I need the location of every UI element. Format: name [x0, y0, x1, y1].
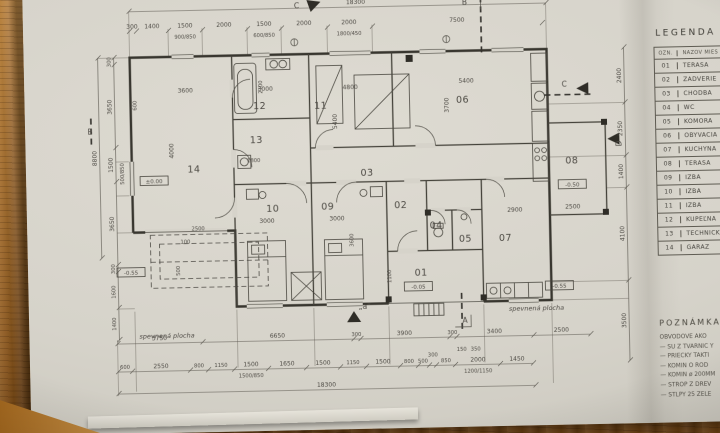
bed-icon: [324, 239, 363, 300]
dim-label: 350: [471, 346, 481, 352]
marker-a-small: „a“: [359, 302, 372, 311]
legend-row: 01TERASA: [655, 56, 720, 72]
dim-label: 1500: [256, 21, 272, 28]
level-label: -0.50: [565, 182, 580, 188]
legend-room-num: 06: [656, 132, 679, 139]
dim-label: 3400: [487, 328, 503, 335]
legend-room-num: 14: [659, 244, 682, 251]
legend-room-name: KUCHYŇA: [680, 145, 717, 153]
section-line-c: [544, 94, 594, 95]
legend-room-name: TERASA: [680, 160, 711, 168]
dim-label: 2350: [617, 121, 624, 137]
notes-title: POZNÁMKA: [659, 316, 720, 328]
legend-room-num: 05: [656, 118, 679, 125]
dim-label: 1150: [346, 360, 359, 366]
level-label: -0.05: [411, 285, 426, 291]
room-label-08: 08: [565, 155, 578, 166]
legend-room-name: KÚPEĽŇA: [681, 216, 716, 224]
dim-label: 1600: [111, 285, 117, 298]
dim-label: 2900: [507, 207, 523, 214]
dim-label: 3000: [259, 218, 275, 225]
dim-label: 300: [126, 24, 138, 31]
dim-label: 7500: [449, 17, 465, 24]
legend-room-name: CHODBA: [678, 90, 712, 98]
column-icon: [481, 294, 487, 300]
dim-label: 100: [180, 240, 190, 246]
legend-col-num: OZN.: [655, 50, 678, 56]
dim-label: 1800: [247, 158, 260, 164]
legend-room-num: 07: [657, 146, 680, 153]
dim-label: 500: [176, 266, 182, 276]
room-label-10: 10: [266, 204, 279, 215]
window-dim-label: 500/850: [120, 163, 126, 185]
legend-row: 02ZÁDVERIE: [655, 70, 720, 86]
dim-label: 1500: [375, 358, 391, 365]
legend-row: 14GARÁŽ: [659, 238, 720, 254]
legend-row: 06OBÝVACIA: [656, 126, 720, 142]
legend-room-num: 11: [658, 202, 681, 209]
chimney-icon: [425, 209, 431, 215]
room-label-06: 06: [456, 95, 469, 106]
room-label-09: 09: [321, 202, 334, 213]
dim-label: 3500: [621, 313, 628, 329]
legend-panel: LEGENDA M OZN. NÁZOV MIES 01TERASA 02ZÁD…: [653, 26, 720, 256]
dim-label: 300: [351, 332, 361, 338]
legend-room-name: IZBA: [680, 188, 701, 195]
room-numbers: 01 02 03 04 05 06 07 08 09 10 11 12 13 1…: [186, 92, 581, 283]
marker-d-right: D: [614, 140, 623, 146]
column-icon: [603, 209, 609, 215]
legend-row: 13TECHNICKÁ: [658, 224, 720, 240]
window-dim-label: 1200/1150: [464, 368, 492, 375]
legend-row: 09IZBA: [657, 168, 720, 184]
dim-label: 850: [441, 358, 451, 364]
dim-label: 3600: [178, 87, 194, 94]
window-dim-label: 600/850: [253, 33, 275, 39]
dim-label: 5400: [332, 114, 339, 130]
dim-overall-bottom: 18300: [317, 382, 336, 389]
marker-b-top: B: [462, 0, 467, 7]
window-dim-label: 1800/450: [337, 31, 362, 38]
dim-label: 2400: [616, 68, 623, 84]
terrace08-walls: [548, 122, 607, 215]
section-arrow-c-top: [306, 0, 320, 12]
dim-label: 3650: [106, 99, 113, 115]
legend-room-num: 08: [657, 160, 680, 167]
dim-label: 1500: [315, 360, 331, 367]
room-label-12: 12: [253, 101, 266, 112]
photo-viewport: ±0.00 -0.05 -0.50 -0.55 -0.55 01 02 03 0…: [0, 0, 720, 433]
chimney-icon: [406, 55, 413, 62]
level-label: ±0.00: [146, 179, 163, 185]
window-dim-label: 1500/850: [239, 373, 264, 380]
legend-room-num: 01: [655, 62, 678, 69]
note-line: — STROP Z DREV: [660, 379, 720, 391]
legend-room-name: GARÁŽ: [682, 244, 710, 252]
dim-label: 2550: [153, 363, 169, 370]
level-label: -0.55: [124, 271, 139, 277]
dim-label: 4800: [343, 84, 359, 91]
dim-label: 1150: [214, 363, 227, 369]
marker-a-bottom: A: [462, 316, 468, 325]
legend-room-num: 13: [658, 230, 681, 237]
legend-row: 05KOMORA: [656, 112, 720, 128]
dim-label: 3900: [397, 330, 413, 337]
kitchen-counter-icon: [531, 53, 548, 81]
paved-area-label-left: spevnená plocha: [139, 331, 194, 340]
dim-label: 2000: [341, 19, 357, 26]
interior-dimensions: 3600 4000 600 3000 2100 1800 4800 5400 5…: [132, 74, 582, 288]
column-icon: [601, 119, 607, 125]
legend-room-num: 03: [655, 90, 678, 97]
legend-title: LEGENDA M: [655, 26, 720, 39]
dim-label: 3000: [329, 215, 345, 222]
dim-label: 1650: [279, 360, 295, 367]
room-label-14: 14: [187, 164, 200, 175]
dim-label: 4100: [619, 226, 626, 242]
notes-panel: POZNÁMKA OBVODOVÉ AKO — SÚ Z TVÁRNIC Y —…: [659, 316, 720, 401]
dim-label: 2000: [216, 22, 232, 29]
dim-label: 1500: [177, 22, 193, 29]
dim-label: 300: [107, 57, 113, 67]
dim-label: 2000: [296, 20, 312, 27]
dim-label: 1400: [144, 23, 160, 30]
legend-room-name: KOMORA: [679, 118, 713, 126]
legend-row: 12KÚPEĽŇA: [658, 210, 720, 226]
dim-label: 600: [132, 101, 138, 111]
section-arrow-a: [347, 311, 361, 322]
sink-icon: [461, 214, 467, 220]
legend-room-name: TERASA: [678, 62, 709, 70]
legend-room-name: IZBA: [680, 174, 701, 181]
legend-room-num: 02: [655, 76, 678, 83]
room-label-11: 11: [314, 101, 327, 112]
legend-room-num: 09: [657, 174, 680, 181]
paved-area-label-right: spevnená plocha: [509, 304, 564, 313]
marker-c-top: C: [294, 1, 299, 10]
room-label-05: 05: [459, 234, 472, 245]
dim-label: 5400: [458, 78, 474, 85]
dim-label: 3600: [349, 233, 355, 246]
dim-overall-left: 8800: [92, 151, 99, 167]
legend-room-name: WC: [679, 104, 695, 111]
dim-label: 800: [194, 363, 204, 369]
dim-label: 4000: [168, 143, 175, 159]
dim-overall-top: 18300: [346, 0, 365, 6]
dim-label: 1400: [112, 317, 118, 330]
dim-label: 1450: [509, 356, 525, 363]
bed-icon: [247, 241, 286, 302]
dim-label: 2500: [554, 327, 570, 334]
legend-table: OZN. NÁZOV MIES 01TERASA 02ZÁDVERIE 03CH…: [653, 44, 720, 255]
legend-room-name: TECHNICKÁ: [681, 229, 720, 237]
legend-room-name: OBÝVACIA: [679, 131, 717, 139]
legend-room-num: 10: [657, 188, 680, 195]
section-arrow-c-right: [576, 82, 588, 94]
floor-plan-drawing: ±0.00 -0.05 -0.50 -0.55 -0.55 01 02 03 0…: [82, 0, 651, 423]
dim-label: 2500: [565, 203, 581, 210]
room-label-07: 07: [499, 233, 512, 244]
dim-label: 150: [457, 347, 467, 353]
blueprint-sheet: ±0.00 -0.05 -0.50 -0.55 -0.55 01 02 03 0…: [22, 0, 720, 433]
dim-label: 300: [111, 264, 117, 274]
legend-row: 11IZBA: [658, 196, 720, 212]
dim-label: 3700: [443, 97, 450, 113]
dim-label: 1500: [243, 361, 259, 368]
dim-label: 1100: [387, 270, 393, 283]
room-label-13: 13: [250, 135, 263, 146]
legend-room-num: 04: [656, 104, 679, 111]
dim-label: 1500: [108, 157, 115, 173]
legend-room-name: IZBA: [681, 202, 702, 209]
legend-col-name: NÁZOV MIES: [678, 49, 719, 56]
dim-label: 800: [404, 359, 414, 365]
dim-label: 300: [428, 352, 438, 358]
column-icon: [386, 296, 392, 302]
level-label: -0.55: [552, 284, 567, 290]
dim-label: 500: [418, 359, 428, 365]
left-dimensions: 8800 300 3650 1500 3650 300 500/850 1600…: [90, 57, 130, 331]
dim-label: 300: [447, 330, 457, 336]
dim-label: 6650: [270, 333, 286, 340]
legend-room-num: 12: [658, 216, 681, 223]
legend-row: 03CHODBA: [655, 84, 720, 100]
dim-label: 1400: [618, 164, 625, 180]
window-dim-label: 900/850: [174, 34, 196, 40]
dim-label: 3650: [109, 216, 116, 232]
dim-label: 2100: [258, 80, 264, 93]
dim-label: 2000: [470, 356, 486, 363]
legend-row: 08TERASA: [657, 154, 720, 170]
legend-row: 04WC: [656, 98, 720, 114]
legend-row: 07KUCHYŇA: [656, 140, 720, 156]
legend-row: 10IZBA: [657, 182, 720, 198]
room-label-01: 01: [414, 268, 427, 279]
section-line-b: [88, 0, 483, 149]
dim-label: 600: [120, 365, 130, 371]
room-label-04: 04: [429, 220, 442, 231]
marker-b-left: B: [87, 128, 92, 137]
room-label-03: 03: [360, 168, 373, 179]
room-label-02: 02: [394, 200, 407, 211]
dim-label: 2500: [192, 226, 205, 232]
marker-c-right: C: [561, 80, 566, 89]
legend-room-name: ZÁDVERIE: [678, 75, 717, 83]
